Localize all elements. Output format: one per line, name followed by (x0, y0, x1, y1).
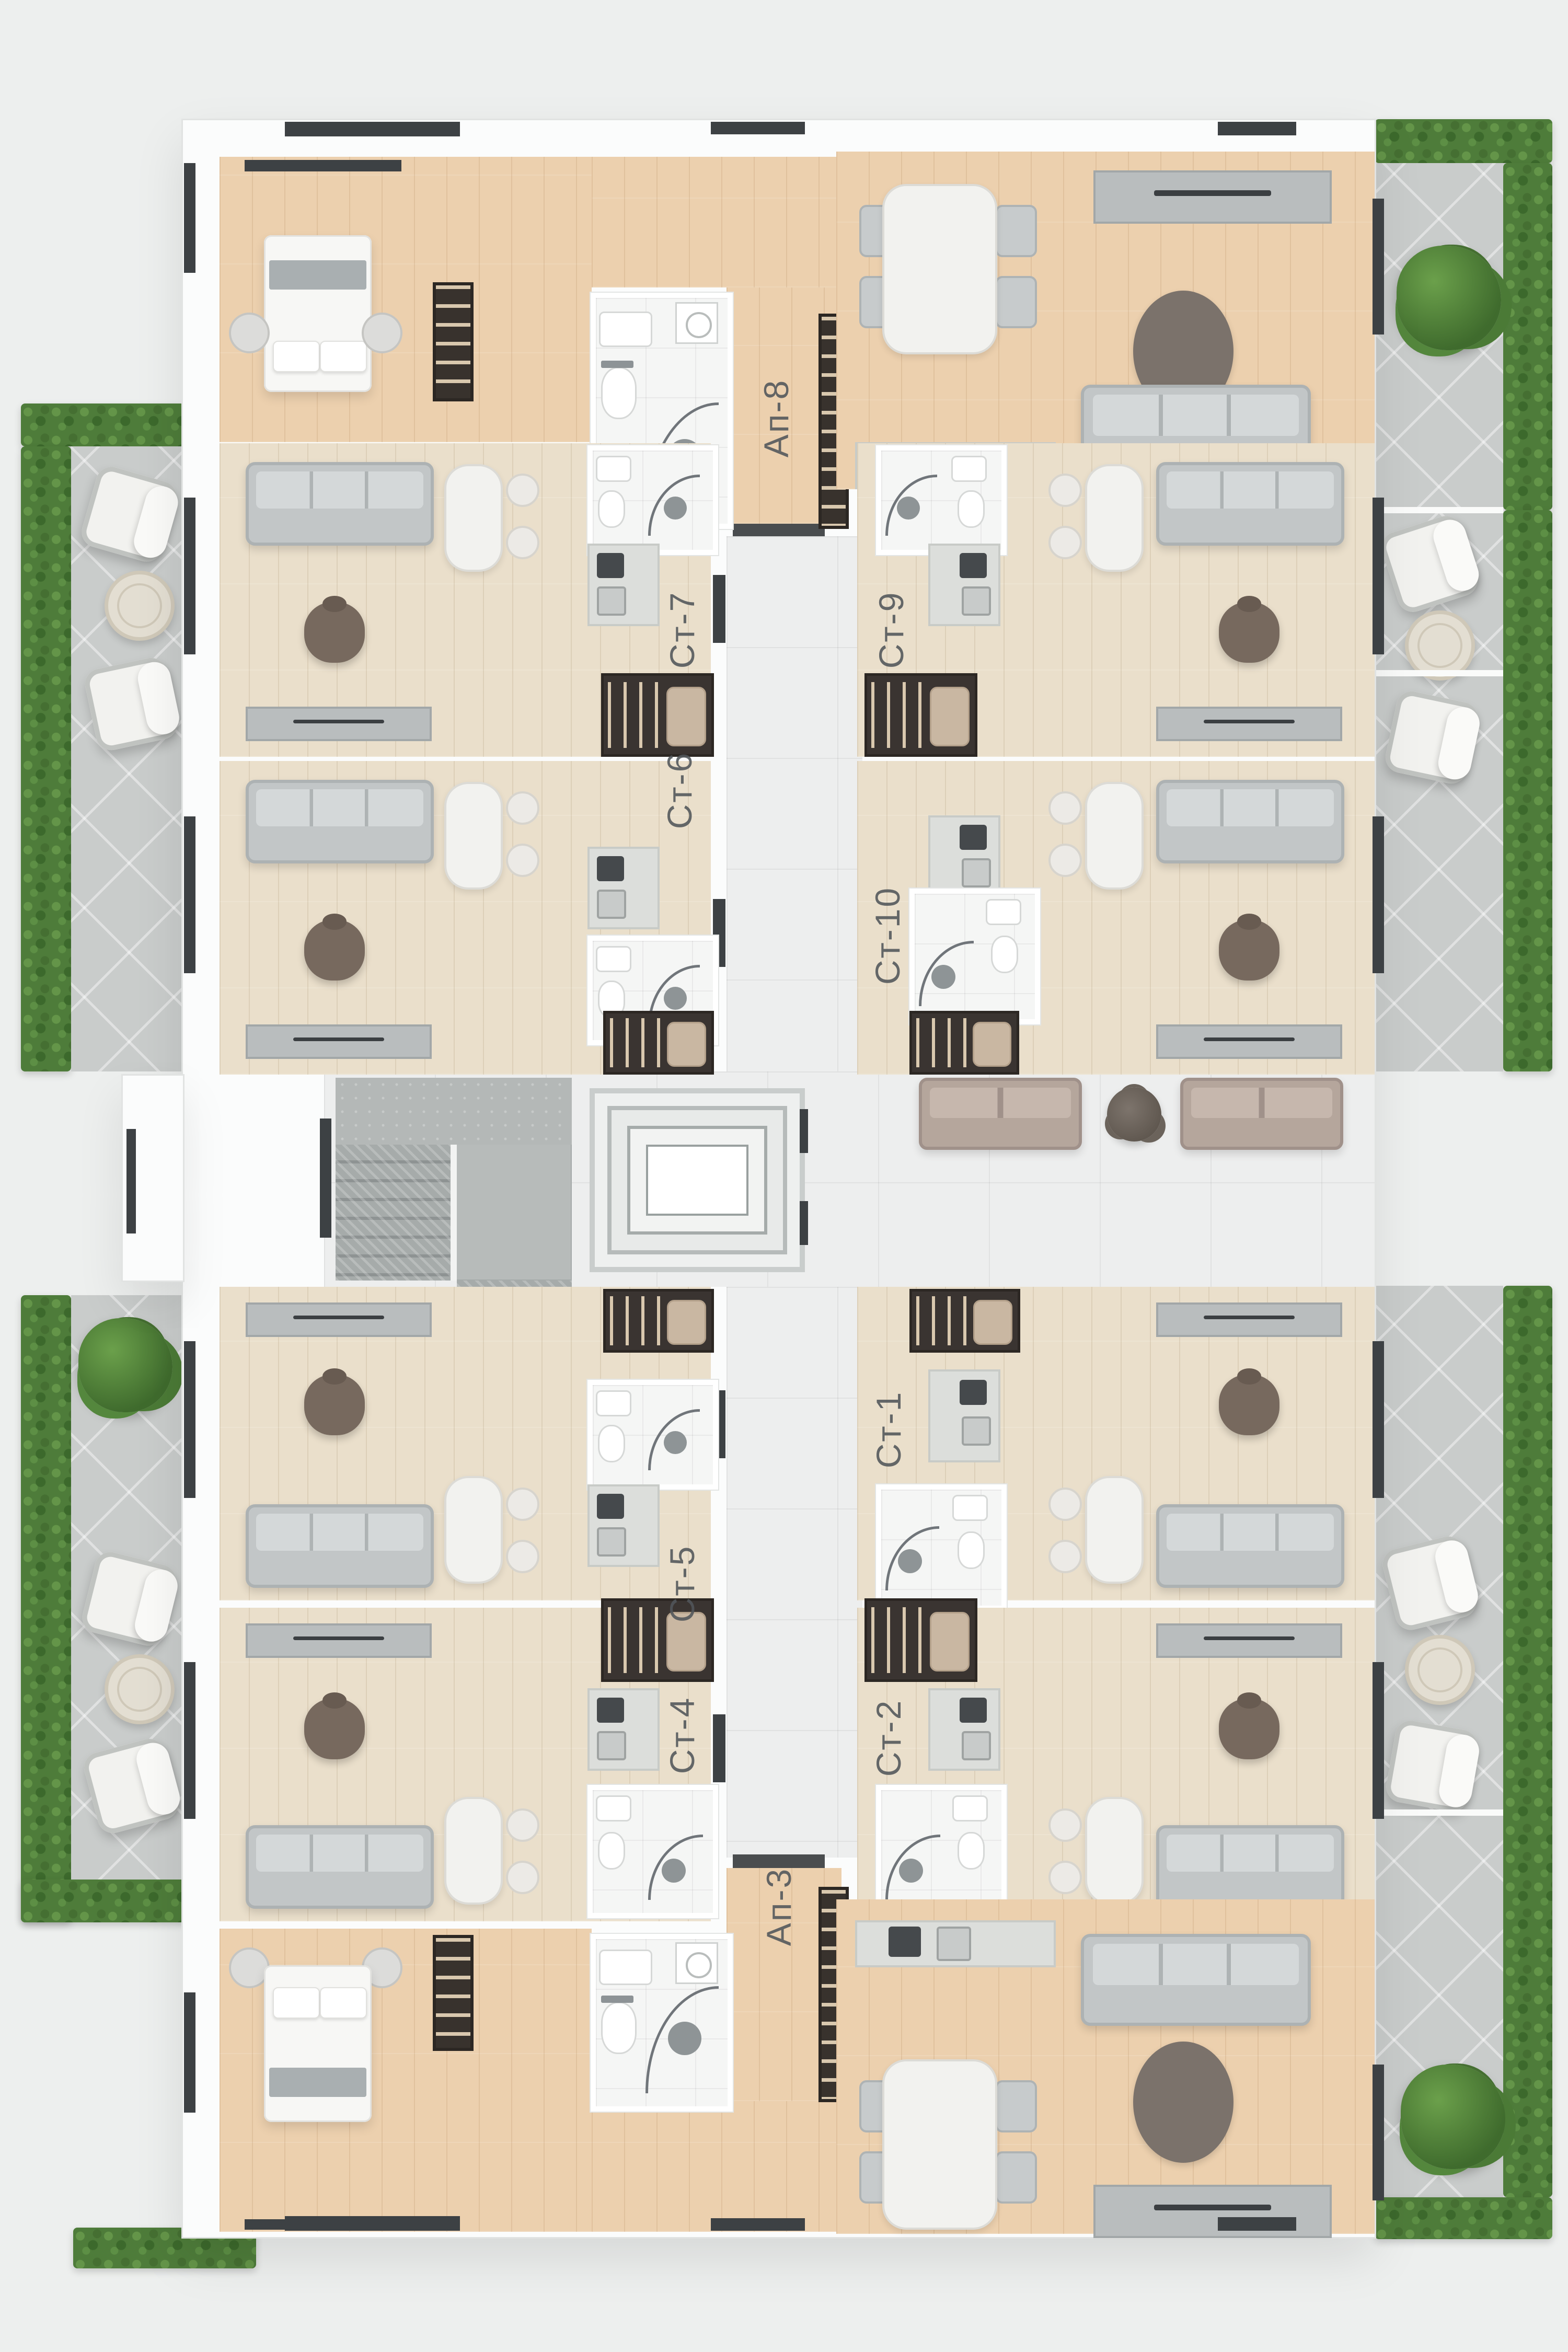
sofa (246, 1504, 434, 1588)
sofa (246, 462, 434, 546)
hanging-clothes (608, 682, 664, 748)
outdoor-table (105, 1654, 175, 1724)
hanging-clothes (610, 1018, 665, 1067)
terrace-door (1373, 2065, 1384, 2200)
hanging-clothes (608, 1607, 664, 1673)
work-table (1085, 464, 1144, 572)
terrace-door (1373, 1341, 1384, 1498)
toilet (598, 1425, 625, 1462)
hedge (1375, 2197, 1552, 2239)
armchair (304, 1375, 365, 1435)
stair-flight (336, 1145, 451, 1281)
bench (930, 1612, 970, 1671)
hedge (21, 446, 71, 1071)
stool (1048, 1540, 1082, 1573)
tv-console (1093, 170, 1332, 224)
elevator-rail (800, 1201, 808, 1245)
dining-chair (995, 2151, 1037, 2204)
bush-plant (1397, 246, 1501, 350)
bed-pillow (273, 341, 320, 372)
unit-door (713, 1714, 725, 1782)
cooktop (960, 553, 987, 578)
armchair (304, 920, 365, 981)
rug (1133, 2042, 1233, 2163)
unit-label-ap3: Ап-3 (758, 1818, 800, 1996)
stair-landing (336, 1078, 572, 1145)
stool (506, 1488, 539, 1521)
sink (596, 1390, 631, 1416)
armchair (1219, 602, 1279, 663)
tv-console (1156, 707, 1342, 741)
hedge (21, 403, 188, 446)
lobby-sofa (919, 1078, 1082, 1150)
toilet-tank (601, 361, 633, 368)
nightstand (229, 313, 270, 353)
corridor (727, 1287, 862, 1858)
sofa (1081, 1934, 1311, 2026)
sink (596, 456, 631, 482)
wardrobe-nook (909, 1011, 1019, 1075)
kitchen-sink (937, 1927, 971, 1961)
sink (599, 1950, 652, 1985)
corridor (727, 536, 862, 1073)
cooktop (597, 1698, 624, 1723)
kitchen-sink (962, 586, 991, 616)
sink (596, 1795, 631, 1821)
dining-chair (995, 205, 1037, 257)
sink (599, 312, 652, 347)
stair-divider (451, 1145, 457, 1281)
hedge (1503, 1286, 1552, 2197)
sofa (1156, 780, 1344, 863)
cooktop (960, 825, 987, 850)
wardrobe (433, 282, 474, 401)
hedge (21, 1295, 71, 1922)
armchair (1219, 920, 1279, 981)
tv-console (246, 1024, 432, 1059)
tv-console (1156, 1024, 1342, 1059)
toilet (601, 367, 637, 419)
armchair (1219, 1375, 1279, 1435)
work-table (444, 464, 503, 572)
stool (506, 1861, 539, 1894)
lobby-sofa (1180, 1078, 1343, 1150)
washing-machine (675, 1942, 718, 1984)
window (711, 122, 805, 134)
dining-chair (995, 2080, 1037, 2132)
terrace-door (184, 498, 195, 654)
work-table (444, 1797, 503, 1905)
bench (930, 687, 970, 746)
toilet (958, 490, 985, 528)
stool (1048, 1861, 1082, 1894)
terrace-door (184, 1341, 195, 1498)
window (285, 2216, 460, 2231)
window (184, 1992, 195, 2113)
entry-door (126, 1129, 136, 1233)
kitchen-sink (597, 1527, 626, 1557)
stool (506, 474, 539, 507)
kitchen-sink (597, 890, 626, 919)
shower-seat (664, 987, 687, 1010)
tv-wall-mount (245, 160, 401, 171)
sofa (1156, 1825, 1344, 1909)
outdoor-armchair (82, 655, 180, 753)
sofa (1156, 462, 1344, 546)
bed-blanket (269, 260, 366, 290)
bed-pillow (320, 341, 367, 372)
stair-door (320, 1119, 331, 1238)
bench (973, 1300, 1012, 1345)
lobby-plant (1107, 1087, 1161, 1142)
toilet (991, 936, 1018, 973)
window (184, 163, 195, 273)
wardrobe-nook (909, 1289, 1020, 1353)
room-ap8-hall (592, 157, 841, 287)
window (1218, 122, 1296, 135)
shower-seat (664, 497, 687, 520)
bench (667, 1300, 706, 1345)
stool (506, 791, 539, 825)
window (1218, 2217, 1296, 2231)
tv-console (246, 1623, 432, 1658)
work-table (1085, 782, 1144, 890)
unit-label-st9: Ст-9 (870, 541, 912, 719)
unit-label-st2: Ст-2 (868, 1649, 909, 1827)
sink (596, 946, 631, 972)
kitchen-sink (597, 1731, 626, 1760)
hedge (21, 1880, 188, 1922)
kitchen-sink (962, 858, 991, 887)
cooktop (960, 1698, 987, 1723)
bed-pillow (320, 1987, 367, 2019)
door-threshold (733, 523, 825, 536)
window (285, 122, 460, 136)
stool (1048, 791, 1082, 825)
hedge (1375, 119, 1552, 163)
tv-console (246, 707, 432, 741)
unit-label-st5: Ст-5 (661, 1495, 703, 1673)
shower-seat (931, 965, 955, 989)
sofa (246, 1825, 434, 1909)
terrace-divider (1375, 1809, 1503, 1816)
unit-label-st4: Ст-4 (661, 1646, 703, 1824)
unit-label-st7: Ст-7 (661, 541, 703, 719)
kitchen-sink (962, 1416, 991, 1446)
kitchen-sink (597, 586, 626, 616)
armchair (304, 1699, 365, 1759)
terrace-door (184, 1662, 195, 1819)
armchair (1219, 1699, 1279, 1759)
work-table (444, 1476, 503, 1584)
room-ap3-hall (592, 2101, 841, 2232)
toilet (601, 2002, 637, 2054)
cooktop (597, 856, 624, 881)
bed-pillow (273, 1987, 320, 2019)
unit-door (713, 575, 725, 643)
washing-machine (675, 302, 718, 344)
tv-console (1156, 1302, 1342, 1337)
unit-label-st1: Ст-1 (868, 1341, 909, 1518)
shower-seat (662, 1859, 686, 1883)
work-table (1085, 1476, 1144, 1584)
stool (1048, 474, 1082, 507)
terrace-door (1373, 816, 1384, 973)
sink (952, 1495, 988, 1521)
toilet (958, 1832, 985, 1870)
terrace-door (1373, 1662, 1384, 1819)
hanging-clothes (916, 1296, 971, 1345)
unit-label-st6: Ст-6 (659, 701, 700, 879)
dining-table (882, 184, 997, 354)
tv-console (1156, 1623, 1342, 1658)
dining-table (882, 2059, 997, 2230)
wardrobe-nook (603, 1289, 714, 1353)
floor-plan: Ап-8 Ст-7 Ст-9 Ст-6 Ст-10 Ст-5 Ст-1 Ст-4… (0, 0, 1568, 2352)
toilet (598, 490, 625, 528)
stool (1048, 526, 1082, 559)
wardrobe (433, 1935, 474, 2051)
shower-seat (899, 1859, 923, 1883)
stool (506, 844, 539, 877)
terrace-door (184, 816, 195, 973)
cooktop (889, 1927, 921, 1957)
outdoor-armchair (1382, 688, 1480, 786)
stool (1048, 1488, 1082, 1521)
cooktop (597, 1494, 624, 1519)
shower-seat (897, 497, 920, 520)
shower-seat (664, 1431, 687, 1454)
hedge (1503, 163, 1552, 510)
outdoor-table (1405, 1635, 1475, 1705)
work-table (444, 782, 503, 890)
stool (1048, 844, 1082, 877)
armchair (304, 602, 365, 663)
sink (986, 899, 1021, 925)
nightstand (362, 313, 402, 353)
shower-seat (898, 1549, 922, 1573)
stool (1048, 1808, 1082, 1842)
outdoor-armchair (1383, 1718, 1479, 1814)
terrace-divider (1375, 507, 1503, 513)
terrace-divider (1375, 670, 1503, 676)
bench (973, 1022, 1011, 1067)
window (711, 2218, 805, 2231)
outdoor-table (105, 571, 175, 641)
stool (506, 1540, 539, 1573)
wardrobe-nook (603, 1011, 714, 1075)
kitchen-sink (962, 1731, 991, 1760)
toilet-tank (601, 1996, 633, 2003)
shower-seat (668, 2022, 701, 2055)
hanging-clothes (916, 1018, 971, 1067)
terrace-door (1373, 199, 1384, 335)
terrace-door (1373, 498, 1384, 654)
bush-plant (78, 1318, 172, 1412)
cooktop (960, 1380, 987, 1405)
sink (951, 456, 987, 482)
stairwell (336, 1078, 572, 1281)
sofa (1156, 1504, 1344, 1588)
hedge (1503, 510, 1552, 1071)
elevator-cab-floor (646, 1145, 748, 1216)
toilet (958, 1531, 985, 1569)
tv-console (246, 1302, 432, 1337)
toilet (598, 1832, 625, 1870)
sink (952, 1795, 988, 1821)
unit-label-ap8: Ап-8 (755, 329, 797, 507)
elevator-rail (800, 1109, 808, 1153)
bed-blanket (269, 2068, 366, 2097)
bench (667, 1022, 706, 1067)
bush-plant (1401, 2065, 1505, 2169)
elevator (590, 1088, 805, 1272)
cooktop (597, 553, 624, 578)
dining-chair (995, 276, 1037, 328)
unit-label-st10: Ст-10 (867, 847, 908, 1024)
work-table (1085, 1797, 1144, 1905)
stool (506, 526, 539, 559)
sofa (246, 780, 434, 863)
hanging-clothes (610, 1296, 665, 1345)
stool (506, 1808, 539, 1842)
